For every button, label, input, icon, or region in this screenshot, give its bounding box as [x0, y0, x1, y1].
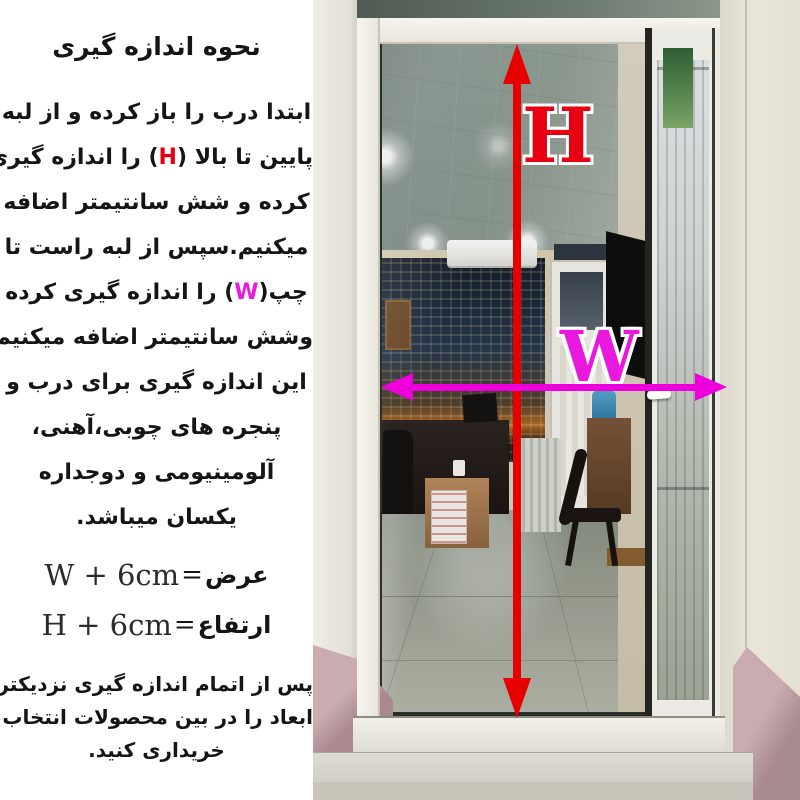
transom-window: [357, 0, 725, 18]
width-arrow-right-head: [695, 373, 727, 401]
formulas: عرض = W + 6cm ارتفاع = H + 6cm: [0, 550, 313, 650]
instruction-line: چپ(W) را اندازه گیری کرده: [0, 270, 313, 315]
door-threshold: [353, 716, 725, 752]
height-expression: H + 6cm: [42, 608, 172, 642]
marble-step-top: [313, 752, 753, 782]
line-text: چپ: [269, 280, 308, 305]
width-symbol: W: [234, 280, 258, 305]
line-text: پایین تا بالا: [187, 145, 313, 170]
height-formula: ارتفاع = H + 6cm: [0, 600, 313, 650]
note-line: خریداری کنید.: [0, 734, 313, 767]
instruction-line: پایین تا بالا (H) را اندازه گیری: [0, 135, 313, 180]
instruction-line: پنجره های چوبی،آهنی،: [0, 405, 313, 450]
instruction-line: آلومینیومی و دوجداره: [0, 450, 313, 495]
measuring-guide-graphic: نحوه اندازه گیری ابتدا درب را باز کرده و…: [0, 0, 800, 800]
paren-open: (: [224, 280, 234, 305]
instruction-line: ابتدا درب را باز کرده و از لبه: [0, 90, 313, 135]
height-word: ارتفاع: [198, 611, 272, 639]
paren-close: ): [259, 280, 269, 305]
instruction-line: یکسان میباشد.: [0, 495, 313, 540]
height-label: H: [522, 98, 594, 174]
height-symbol-group: (H): [148, 145, 187, 170]
green-painting-reflection: [663, 48, 693, 128]
width-word: عرض: [205, 561, 269, 589]
purchase-note: پس از اتمام اندازه گیری نزدیکترین ابعاد …: [0, 668, 313, 767]
width-arrow-shaft: [409, 384, 697, 391]
width-formula: عرض = W + 6cm: [0, 550, 313, 600]
height-symbol: H: [159, 145, 177, 170]
page-title: نحوه اندازه گیری: [0, 26, 313, 68]
width-arrow-left-head: [381, 373, 413, 401]
equals-sign: =: [181, 560, 203, 590]
height-arrow-down-head: [503, 678, 531, 718]
note-line: ابعاد را در بین محصولات انتخاب و: [0, 701, 313, 734]
width-expression: W + 6cm: [44, 558, 179, 592]
instruction-line: وشش سانتیمتر اضافه میکنیم.: [0, 315, 313, 360]
instructions-panel: نحوه اندازه گیری ابتدا درب را باز کرده و…: [0, 0, 313, 800]
paren-close: ): [177, 145, 187, 170]
instruction-line: میکنیم.سپس از لبه راست تا: [0, 225, 313, 270]
height-arrow-up-head: [503, 44, 531, 84]
equals-sign: =: [174, 610, 196, 640]
instruction-line: این اندازه گیری برای درب و: [0, 360, 313, 405]
line-text: را اندازه گیری کرده: [5, 280, 224, 305]
line-text: را اندازه گیری: [0, 145, 148, 170]
height-arrow-shaft: [513, 82, 521, 680]
width-label: W: [560, 322, 639, 392]
right-wall-groove: [745, 0, 747, 660]
measuring-instructions: ابتدا درب را باز کرده و از لبه پایین تا …: [0, 90, 313, 540]
width-symbol-group: (W): [224, 280, 268, 305]
note-line: پس از اتمام اندازه گیری نزدیکترین: [0, 668, 313, 701]
marble-step-front: [313, 782, 753, 800]
paren-open: (: [148, 145, 158, 170]
instruction-line: کرده و شش سانتیمتر اضافه: [0, 180, 313, 225]
door-frame-left: [357, 18, 380, 752]
door-photo: H W: [313, 0, 800, 800]
open-door-inner-edge: [645, 28, 652, 720]
